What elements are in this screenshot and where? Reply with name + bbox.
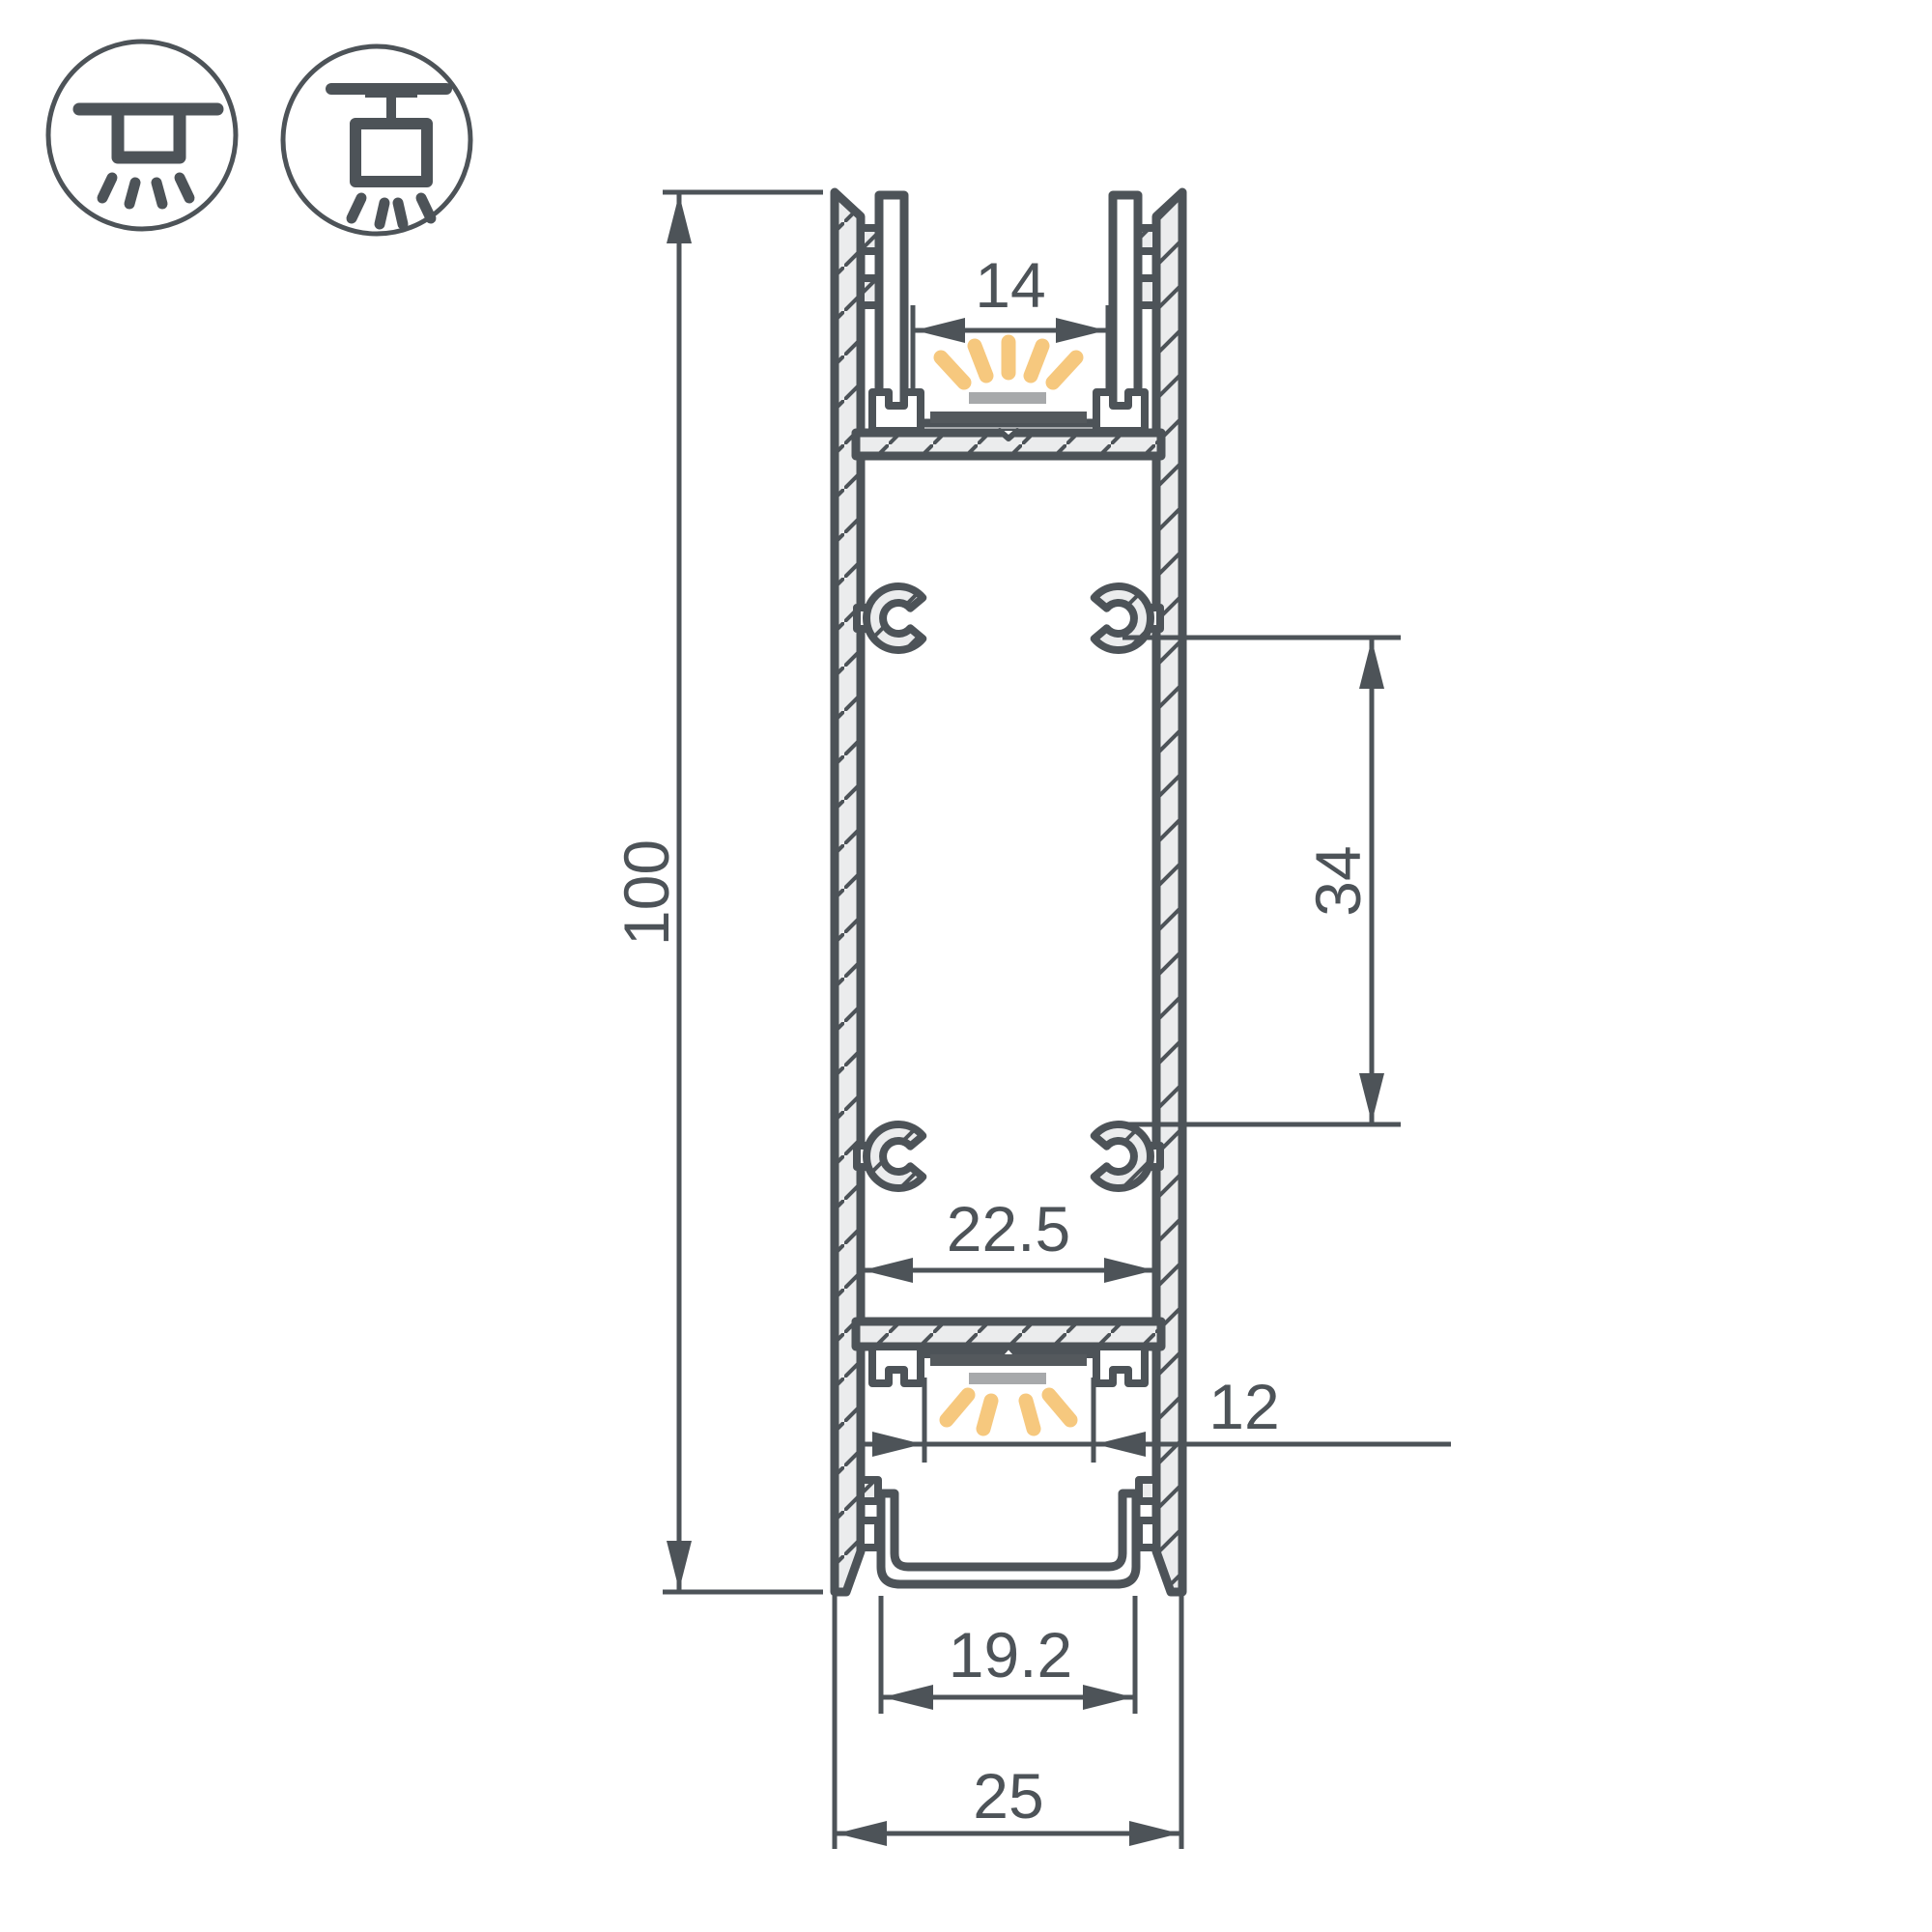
screw-boss-upper-left	[867, 586, 923, 650]
screw-boss-lower-left	[867, 1124, 923, 1188]
light-rays-icon	[352, 198, 431, 224]
right-wall	[1156, 192, 1182, 1592]
dim-top-channel-label: 14	[975, 249, 1045, 321]
mounting-icons	[48, 42, 470, 234]
t-slot-right	[1096, 1347, 1145, 1383]
dim-bottom-aperture-label: 12	[1208, 1371, 1279, 1442]
technical-drawing: 100 14 34 22.5 12 19.2 25	[0, 0, 1932, 1932]
t-slot-left	[872, 1347, 921, 1383]
light-rays-down	[947, 1395, 1070, 1429]
screw-bosses	[867, 586, 1151, 1188]
diffuser-tray	[881, 1493, 1136, 1584]
left-wall	[835, 192, 861, 1592]
led-strip	[969, 1373, 1046, 1384]
screw-boss-upper-right	[1094, 586, 1151, 650]
screw-boss-necks	[857, 608, 1160, 1167]
dim-total-height-lines	[663, 192, 823, 1592]
led-pcb	[930, 1354, 1087, 1366]
profile-cross-section	[835, 192, 1182, 1592]
bottom-led-channel	[872, 1346, 1145, 1584]
fixture-box	[355, 124, 427, 182]
light-rays-up	[941, 342, 1076, 383]
dim-bottom-opening-label: 19.2	[949, 1619, 1072, 1690]
screw-boss-lower-right	[1094, 1124, 1151, 1188]
ceiling-pendant-mount-icon	[283, 46, 470, 234]
ceiling-surface-mount-icon	[48, 42, 236, 229]
icon-circle	[283, 46, 470, 234]
light-rays-icon	[102, 178, 189, 204]
led-pcb	[930, 412, 1087, 423]
led-strip	[969, 392, 1046, 404]
dim-boss-spacing-label: 34	[1302, 845, 1374, 916]
dim-total-height-label: 100	[611, 839, 682, 946]
dim-total-width-label: 25	[973, 1760, 1043, 1832]
dim-inner-width-label: 22.5	[947, 1193, 1070, 1264]
fixture-box	[118, 109, 180, 157]
icon-circle	[48, 42, 236, 229]
